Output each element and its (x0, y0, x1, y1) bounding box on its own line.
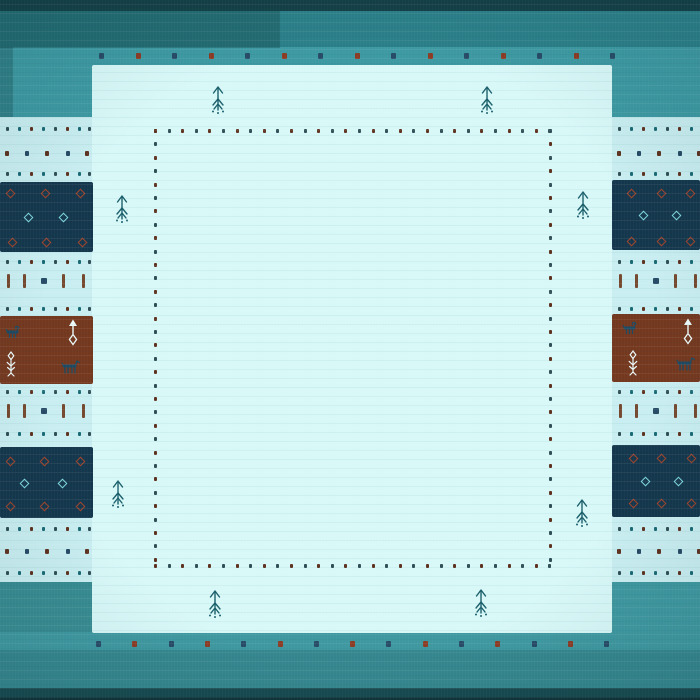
block-brown-left (0, 316, 93, 384)
rug-layers (0, 0, 700, 700)
band-dot (6, 432, 9, 436)
edge-dot (350, 641, 355, 647)
band-dot (630, 390, 633, 394)
edge-dot (136, 53, 141, 59)
band-dot (690, 260, 693, 264)
inner-border-dot (154, 544, 157, 548)
inner-border-dot (168, 564, 171, 568)
inner-border-dot (549, 223, 552, 227)
band-dot (6, 307, 9, 311)
band-dot (690, 127, 693, 131)
band-dot (678, 307, 681, 311)
band-dot (45, 549, 49, 554)
band-dot (54, 127, 57, 131)
edge-dot (604, 641, 609, 647)
band-dot (642, 307, 645, 311)
inner-border-dot (549, 263, 552, 267)
band-dot (25, 151, 29, 156)
border-bottom-band (0, 650, 700, 688)
inner-border-dot (154, 129, 157, 133)
edge-dot (209, 53, 214, 59)
band-dot (618, 172, 621, 176)
inner-border-dot (154, 464, 157, 468)
band-dot (78, 390, 81, 394)
band-dot (642, 432, 645, 436)
stitch-bar (7, 274, 10, 288)
inner-border-dot (549, 142, 552, 146)
band-dot (42, 260, 45, 264)
inner-border-dot (263, 129, 266, 133)
band-dot (666, 260, 669, 264)
inner-border-dot (154, 317, 157, 321)
inner-border-dot (372, 564, 375, 568)
inner-border-dot (304, 564, 307, 568)
inner-border-dot (181, 129, 184, 133)
band-dot (78, 260, 81, 264)
inner-border-dot (549, 424, 552, 428)
band-dot (690, 172, 693, 176)
band-dot (18, 432, 21, 436)
band-dot (678, 549, 682, 554)
band-dot (30, 172, 33, 176)
band-dot (630, 260, 633, 264)
band-dot (6, 127, 9, 131)
band-dot (78, 527, 81, 531)
edge-dot (495, 641, 500, 647)
band-dot (78, 172, 81, 176)
inner-border-dot (508, 564, 511, 568)
band-dot (88, 260, 91, 264)
band-dot (6, 172, 9, 176)
band-dot (630, 307, 633, 311)
band-dot (637, 151, 641, 156)
inner-border-dot (154, 357, 157, 361)
edge-dot (459, 641, 464, 647)
inner-border-dot (549, 451, 552, 455)
inner-border-dot (549, 544, 552, 548)
edge-dot (610, 53, 615, 59)
band-dot (5, 151, 9, 156)
band-dot (666, 390, 669, 394)
band-dot (18, 390, 21, 394)
band-dot (30, 307, 33, 311)
band-dot (66, 172, 69, 176)
edge-dot (132, 641, 137, 647)
inner-border-dot (521, 564, 524, 568)
band-dot (630, 571, 633, 575)
inner-border-dot (549, 250, 552, 254)
inner-border-dot (426, 564, 429, 568)
stitch-bar (62, 274, 65, 288)
stitch-bar (674, 274, 677, 288)
band-dot (666, 307, 669, 311)
band-dot (678, 571, 681, 575)
band-dot (654, 390, 657, 394)
inner-border-dot (549, 477, 552, 481)
band-dot (42, 432, 45, 436)
band-dot (630, 432, 633, 436)
block-brown-right (612, 314, 700, 382)
edge-dot (355, 53, 360, 59)
edge-dot (574, 53, 579, 59)
inner-border-dot (154, 343, 157, 347)
band-dot (630, 172, 633, 176)
band-dot (630, 527, 633, 531)
band-dot (690, 432, 693, 436)
edge-dot (245, 53, 250, 59)
band-dot (85, 549, 89, 554)
band-dot (618, 127, 621, 131)
inner-border-dot (154, 183, 157, 187)
inner-border-dot (549, 156, 552, 160)
inner-border-dot (331, 564, 334, 568)
inner-border-dot (467, 564, 470, 568)
inner-border-dot (549, 370, 552, 374)
shade-bottom-left (0, 582, 92, 632)
block-navy-right-bottom (612, 445, 700, 517)
band-dot (30, 127, 33, 131)
band-dot (654, 172, 657, 176)
band-dot (88, 527, 91, 531)
center-field (92, 65, 612, 633)
inner-border-dot (549, 343, 552, 347)
band-dot (66, 151, 70, 156)
inner-border-dot (453, 564, 456, 568)
edge-dot (241, 641, 246, 647)
stitch-bar (619, 274, 622, 288)
band-dot (618, 571, 621, 575)
band-dot (66, 307, 69, 311)
inner-border-dot (154, 564, 157, 568)
band-dot (5, 549, 9, 554)
band-dot (654, 127, 657, 131)
band-dot (88, 390, 91, 394)
inner-border-dot (154, 156, 157, 160)
inner-border-dot (154, 236, 157, 240)
inner-border-dot (154, 169, 157, 173)
inner-border-dot (154, 209, 157, 213)
inner-border-dot (290, 564, 293, 568)
stitch-bar (619, 404, 622, 418)
inner-border-dot (154, 558, 157, 562)
shade-left-edge (0, 47, 13, 117)
band-dot (54, 172, 57, 176)
band-dot (66, 432, 69, 436)
inner-border-dot (236, 129, 239, 133)
band-dot (678, 260, 681, 264)
inner-border-dot (549, 290, 552, 294)
band-dot (54, 390, 57, 394)
inner-border-dot (358, 129, 361, 133)
inner-border-dot (154, 263, 157, 267)
band-dot (78, 571, 81, 575)
band-dot (66, 549, 70, 554)
band-dot (618, 307, 621, 311)
inner-border-dot (249, 129, 252, 133)
inner-border-dot (549, 491, 552, 495)
edge-dot (568, 641, 573, 647)
band-dot (42, 390, 45, 394)
band-dot (617, 549, 621, 554)
inner-border-dot (521, 129, 524, 133)
band-dot (18, 172, 21, 176)
inner-border-dot (154, 518, 157, 522)
inner-border-dot (549, 183, 552, 187)
inner-border-dot (154, 397, 157, 401)
inner-border-dot (440, 129, 443, 133)
inner-border-dot (222, 129, 225, 133)
band-dot (30, 527, 33, 531)
inner-border-dot (181, 564, 184, 568)
band-dot (690, 307, 693, 311)
band-dot (45, 151, 49, 156)
shade-top-left (0, 8, 280, 48)
band-dot (666, 432, 669, 436)
band-dot (66, 260, 69, 264)
inner-border-dot (372, 129, 375, 133)
inner-border-dot (154, 290, 157, 294)
inner-border-dot (358, 564, 361, 568)
rug-photo (0, 0, 700, 700)
band-dot (54, 307, 57, 311)
band-dot (690, 527, 693, 531)
edge-dot (537, 53, 542, 59)
band-dot (88, 172, 91, 176)
edge-dot (532, 641, 537, 647)
edge-dot (169, 641, 174, 647)
band-dot (42, 527, 45, 531)
inner-border-dot (222, 564, 225, 568)
inner-border-dot (535, 564, 538, 568)
inner-border-dot (236, 564, 239, 568)
edge-dot (386, 641, 391, 647)
inner-border-dot (249, 564, 252, 568)
band-dot (88, 571, 91, 575)
band-dot (30, 432, 33, 436)
stitch-bar (23, 274, 26, 288)
band-dot (85, 151, 89, 156)
band-dot (6, 260, 9, 264)
edge-dot (172, 53, 177, 59)
band-dot (88, 307, 91, 311)
band-dot (18, 307, 21, 311)
band-dot (666, 571, 669, 575)
stitch-square (41, 408, 47, 414)
inner-border-dot (154, 303, 157, 307)
inner-border-dot (385, 129, 388, 133)
inner-border-dot (304, 129, 307, 133)
inner-border-dot (467, 129, 470, 133)
band-dot (66, 527, 69, 531)
inner-border-dot (453, 129, 456, 133)
band-dot (690, 571, 693, 575)
band-dot (18, 527, 21, 531)
band-dot (654, 571, 657, 575)
band-dot (666, 127, 669, 131)
band-dot (617, 151, 621, 156)
inner-border-dot (399, 564, 402, 568)
stitch-bar (635, 404, 638, 418)
band-dot (678, 151, 682, 156)
inner-border-dot (549, 196, 552, 200)
inner-border-dot (549, 384, 552, 388)
band-dot (54, 260, 57, 264)
band-dot (6, 527, 9, 531)
inner-border-dot (440, 564, 443, 568)
band-dot (642, 172, 645, 176)
inner-border-dot (549, 330, 552, 334)
stitch-bar (23, 404, 26, 418)
inner-border-dot (549, 317, 552, 321)
band-dot (66, 571, 69, 575)
inner-border-dot (154, 451, 157, 455)
band-dot (78, 127, 81, 131)
band-dot (618, 390, 621, 394)
band-dot (18, 260, 21, 264)
inner-border-dot (154, 142, 157, 146)
inner-border-dot (154, 196, 157, 200)
inner-border-dot (154, 223, 157, 227)
band-dot (618, 432, 621, 436)
stitch-bar (62, 404, 65, 418)
band-dot (66, 390, 69, 394)
inner-border-dot (290, 129, 293, 133)
inner-border-dot (549, 357, 552, 361)
stitch-square (653, 408, 659, 414)
band-dot (657, 549, 661, 554)
edge-dot (318, 53, 323, 59)
inner-border-dot (154, 531, 157, 535)
band-dot (6, 390, 9, 394)
stitch-bar (82, 274, 85, 288)
edge-dot (96, 641, 101, 647)
inner-border-dot (154, 410, 157, 414)
inner-border-dot (263, 564, 266, 568)
band-dot (30, 390, 33, 394)
inner-border-dot (426, 129, 429, 133)
inner-border-dot (154, 437, 157, 441)
edge-dot (391, 53, 396, 59)
band-dot (678, 172, 681, 176)
stitch-square (653, 278, 659, 284)
band-dot (78, 307, 81, 311)
band-dot (678, 390, 681, 394)
band-dot (642, 527, 645, 531)
inner-border-dot (154, 477, 157, 481)
band-dot (642, 390, 645, 394)
inner-border-dot (154, 276, 157, 280)
inner-border-dot (399, 129, 402, 133)
inner-border-dot (154, 504, 157, 508)
band-dot (690, 390, 693, 394)
band-dot (678, 127, 681, 131)
stitch-bar (694, 404, 697, 418)
inner-border-dot (331, 129, 334, 133)
band-dot (42, 307, 45, 311)
inner-border-dot (508, 129, 511, 133)
band-dot (6, 571, 9, 575)
inner-border-dot (549, 236, 552, 240)
band-dot (66, 127, 69, 131)
inner-border-dot (549, 558, 552, 562)
inner-border-dot (549, 504, 552, 508)
inner-border-dot (549, 437, 552, 441)
inner-border-dot (154, 330, 157, 334)
inner-border-dot (168, 129, 171, 133)
band-dot (42, 127, 45, 131)
band-dot (54, 527, 57, 531)
band-dot (642, 260, 645, 264)
inner-border-dot (154, 384, 157, 388)
band-dot (642, 571, 645, 575)
band-dot (42, 172, 45, 176)
band-dot (78, 432, 81, 436)
inner-border-dot (549, 303, 552, 307)
inner-border-dot (385, 564, 388, 568)
band-dot (618, 260, 621, 264)
band-dot (30, 260, 33, 264)
inner-border-dot (549, 531, 552, 535)
edge-dot (282, 53, 287, 59)
inner-border-dot (195, 129, 198, 133)
band-dot (678, 527, 681, 531)
edge-dot (314, 641, 319, 647)
band-dot (30, 571, 33, 575)
edge-dot (501, 53, 506, 59)
band-dot (657, 151, 661, 156)
stitch-bar (7, 404, 10, 418)
band-dot (618, 527, 621, 531)
band-dot (642, 127, 645, 131)
band-dot (666, 527, 669, 531)
inner-border-dot (549, 397, 552, 401)
band-dot (88, 127, 91, 131)
band-dot (18, 571, 21, 575)
stitch-bar (674, 404, 677, 418)
band-dot (18, 127, 21, 131)
stitch-bar (635, 274, 638, 288)
edge-dot (205, 641, 210, 647)
band-dot (654, 307, 657, 311)
edge-dot (278, 641, 283, 647)
inner-border-dot (494, 129, 497, 133)
inner-border-dot (195, 564, 198, 568)
inner-border-dot (154, 370, 157, 374)
band-dot (654, 260, 657, 264)
inner-border-dot (549, 169, 552, 173)
band-dot (25, 549, 29, 554)
band-dot (54, 571, 57, 575)
band-dot (54, 432, 57, 436)
edge-dot (99, 53, 104, 59)
band-dot (666, 172, 669, 176)
stitch-bar (82, 404, 85, 418)
inner-border-dot (154, 250, 157, 254)
band-dot (630, 127, 633, 131)
edge-dot (428, 53, 433, 59)
inner-border-dot (549, 410, 552, 414)
band-dot (654, 527, 657, 531)
stitch-bar (694, 274, 697, 288)
inner-border-dot (535, 129, 538, 133)
band-dot (88, 432, 91, 436)
stitch-square (41, 278, 47, 284)
band-dot (654, 432, 657, 436)
edge-dot (464, 53, 469, 59)
inner-border-dot (494, 564, 497, 568)
inner-border-dot (549, 276, 552, 280)
band-dot (678, 432, 681, 436)
